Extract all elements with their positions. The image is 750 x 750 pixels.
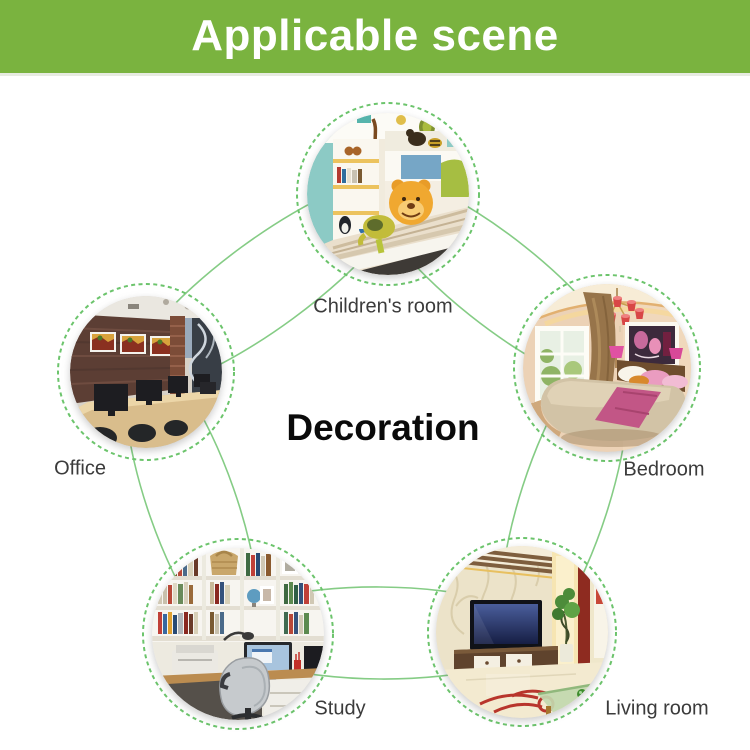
header-banner: Applicable scene bbox=[0, 0, 750, 73]
decoration-diagram: Children's room Office Bedroom Study Liv… bbox=[0, 73, 750, 750]
photo-children-room bbox=[307, 113, 469, 275]
promo-page: Applicable scene bbox=[0, 0, 750, 750]
scene-label-office: Office bbox=[54, 458, 106, 481]
photo-bedroom bbox=[523, 284, 691, 452]
center-label: Decoration bbox=[286, 407, 479, 449]
scene-label-bedroom: Bedroom bbox=[623, 459, 704, 482]
scene-label-children-room: Children's room bbox=[313, 296, 452, 319]
photo-living-room bbox=[436, 546, 608, 718]
photo-study bbox=[152, 548, 324, 720]
page-title: Applicable scene bbox=[191, 11, 558, 61]
scene-label-study: Study bbox=[314, 698, 365, 721]
photo-office bbox=[70, 296, 222, 448]
scene-label-living-room: Living room bbox=[605, 698, 708, 721]
